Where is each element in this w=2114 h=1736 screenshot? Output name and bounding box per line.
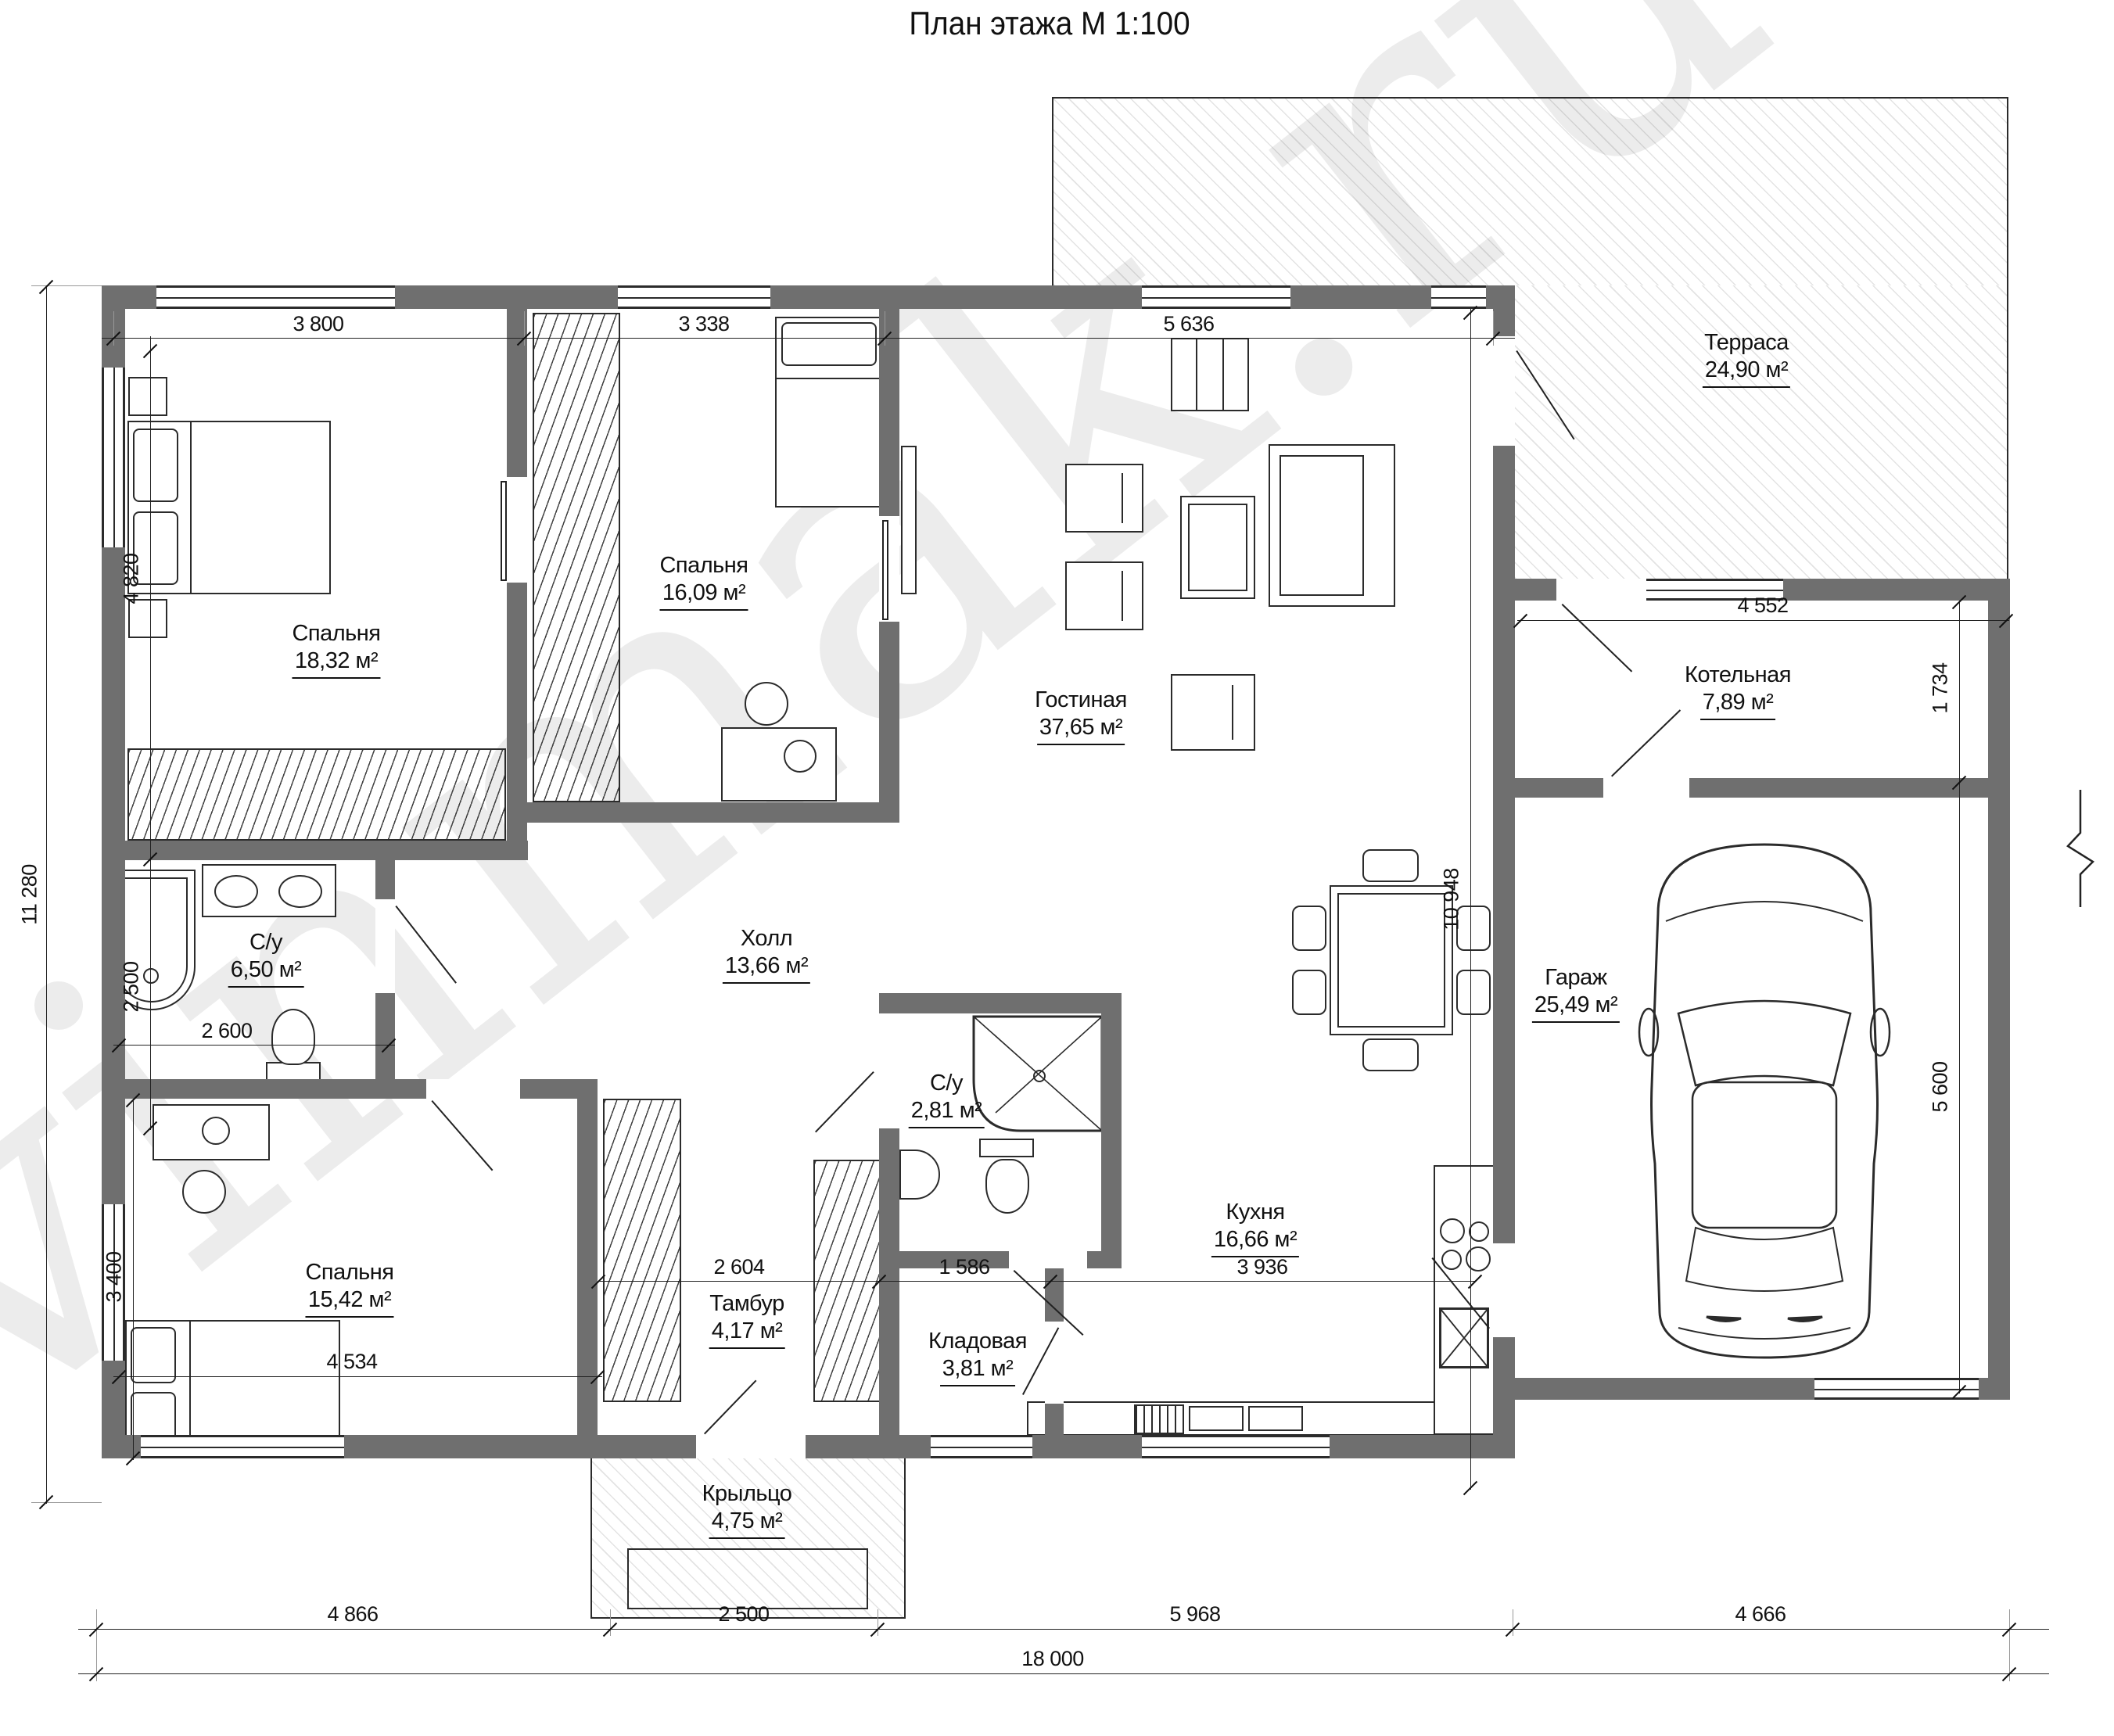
tv-stand [901, 446, 917, 594]
dim-value: 2 500 [718, 1602, 769, 1627]
cooktop-burner [1441, 1250, 1462, 1270]
room-label-bedroom3: Спальня 15,42 м² [305, 1259, 393, 1318]
dim-value: 5 636 [1163, 312, 1214, 336]
room-area: 7,89 м² [1700, 689, 1776, 719]
nightstand [128, 377, 167, 416]
window [156, 285, 395, 309]
cooktop-burner [1440, 1218, 1465, 1243]
room-label-wc: С/у 2,81 м² [909, 1070, 985, 1128]
door-swing [704, 1380, 756, 1435]
dim-extension [113, 311, 114, 346]
room-name: Гостиная [1035, 687, 1127, 714]
dim-value: 4 866 [327, 1602, 378, 1627]
dim-value: 5 600 [1929, 1061, 1953, 1112]
dim-line [113, 1045, 395, 1046]
dining-table [1330, 885, 1453, 1035]
room-area: 24,90 м² [1703, 357, 1790, 387]
room-label-terrace: Терраса 24,90 м² [1703, 329, 1790, 388]
door-opening [1556, 579, 1646, 601]
nightstand [128, 599, 167, 638]
wall-bedroom2-bottom [507, 802, 899, 823]
kitchen-sink [1189, 1406, 1244, 1431]
door-swing [1562, 604, 1633, 673]
terrace-boundary [2007, 97, 2008, 580]
dim-extension [2009, 1609, 2010, 1681]
room-label-bedroom1: Спальня 18,32 м² [292, 620, 380, 679]
dim-line [78, 1673, 2049, 1674]
room-area: 6,50 м² [228, 956, 304, 987]
room-name: Холл [723, 925, 810, 952]
pillow [133, 429, 178, 502]
sofa-seat [1280, 455, 1364, 596]
room-area: 2,81 м² [909, 1097, 985, 1128]
cooktop-burner [1466, 1246, 1491, 1272]
coffee-table [1180, 496, 1255, 599]
dim-line [102, 338, 1515, 339]
room-label-porch: Крыльцо 4,75 м² [702, 1480, 792, 1539]
wc-sink [899, 1150, 940, 1200]
dim-extension [1513, 1609, 1513, 1636]
desk [721, 727, 837, 802]
dim-extension [1493, 311, 1494, 346]
drawing-title: План этажа М 1:100 [909, 5, 1190, 42]
dim-value: 1 586 [939, 1255, 989, 1279]
toilet-bowl [271, 1009, 315, 1065]
window [1431, 285, 1486, 309]
room-label-bathroom: С/у 6,50 м² [228, 929, 304, 988]
sink-basin [214, 875, 258, 908]
dim-line [46, 285, 47, 1504]
dim-extension [610, 1609, 611, 1636]
dim-line [78, 1629, 2049, 1630]
dim-value: 3 936 [1236, 1255, 1287, 1279]
porch-edge [904, 1458, 906, 1619]
cabinet [1171, 338, 1249, 411]
door-opening [1603, 778, 1689, 798]
room-label-bedroom2: Спальня 16,09 м² [659, 552, 748, 611]
room-area: 13,66 м² [723, 952, 810, 983]
dim-value: 10 948 [1440, 868, 1464, 931]
dim-value: 2 500 [120, 961, 144, 1012]
wall-right [1988, 579, 2010, 1400]
armchair [1065, 464, 1143, 533]
room-name: Спальня [659, 552, 748, 579]
room-label-kitchen: Кухня 16,66 м² [1211, 1199, 1299, 1257]
window [1142, 1435, 1330, 1458]
window [618, 285, 770, 309]
dim-line [598, 1281, 1475, 1282]
terrace-boundary [1052, 97, 1053, 287]
dim-value: 3 338 [678, 312, 729, 336]
chair [1292, 906, 1326, 951]
window [931, 1435, 1032, 1458]
dim-value: 3 800 [293, 312, 343, 336]
door-opening [426, 1079, 520, 1099]
chair [1292, 970, 1326, 1015]
vanity [202, 864, 336, 917]
porch-step [627, 1548, 868, 1609]
room-name: Спальня [292, 620, 380, 647]
dim-value: 18 000 [1021, 1647, 1084, 1671]
wall-tambour-right [879, 1128, 899, 1458]
pillow [781, 322, 877, 366]
room-area: 4,75 м² [709, 1508, 785, 1538]
room-name: С/у [909, 1070, 985, 1097]
room-label-garage: Гараж 25,49 м² [1532, 964, 1620, 1023]
room-area: 16,66 м² [1211, 1226, 1299, 1257]
room-name: Крыльцо [702, 1480, 792, 1508]
dim-value: 1 734 [1929, 662, 1953, 713]
dim-value: 4 666 [1735, 1602, 1786, 1627]
wall-bedroom1-right [507, 309, 527, 860]
break-symbol [2057, 790, 2104, 907]
room-name: Гараж [1532, 964, 1620, 992]
sink-basin [278, 875, 322, 908]
room-label-tambour: Тамбур 4,17 м² [709, 1290, 785, 1349]
dim-value: 4 552 [1737, 594, 1788, 618]
oven-unit [1439, 1307, 1489, 1368]
window [1142, 285, 1290, 309]
door-leaf [501, 481, 507, 581]
dim-tick [1513, 614, 1527, 628]
dim-value: 2 600 [201, 1019, 252, 1043]
room-area: 15,42 м² [306, 1286, 393, 1317]
dim-value: 5 968 [1169, 1602, 1220, 1627]
door-leaf [882, 520, 888, 620]
room-label-living: Гостиная 37,65 м² [1035, 687, 1127, 745]
kitchen-unit [1434, 1165, 1495, 1435]
dim-extension [31, 1502, 102, 1503]
room-area: 3,81 м² [940, 1355, 1016, 1386]
blanket-line [190, 421, 192, 594]
wall-wc-right [1101, 1013, 1122, 1268]
desk-chair [745, 682, 788, 726]
door-opening [1493, 336, 1515, 446]
dim-extension [96, 1609, 97, 1681]
dim-extension [885, 311, 885, 346]
dim-value: 2 604 [713, 1255, 764, 1279]
armchair-seat [1075, 473, 1123, 523]
armchair-seat [1182, 685, 1233, 740]
armchair [1065, 561, 1143, 630]
dim-value: 11 280 [18, 864, 42, 925]
dim-extension [878, 1609, 878, 1636]
door-opening [507, 477, 527, 583]
room-name: Тамбур [709, 1290, 785, 1318]
armchair-seat [1075, 571, 1123, 621]
room-area: 18,32 м² [293, 647, 380, 678]
dish-rack [1134, 1404, 1184, 1434]
sofa [1269, 444, 1395, 607]
wall-bedroom3-top [102, 1079, 598, 1099]
chair [1362, 849, 1419, 882]
door-swing [1611, 709, 1681, 777]
room-name: С/у [228, 929, 304, 956]
shower-cabin [972, 1015, 1104, 1132]
dim-line [1517, 620, 2009, 621]
wardrobe [533, 313, 620, 802]
wall-tambour-left [577, 1079, 598, 1458]
door-opening [375, 899, 395, 993]
dim-line [150, 336, 151, 1130]
kitchen-sink [1248, 1406, 1303, 1431]
dim-line [1470, 309, 1471, 1490]
toilet-tank [979, 1139, 1034, 1157]
wall-bath-top [102, 841, 528, 860]
room-label-hall: Холл 13,66 м² [723, 925, 810, 984]
wardrobe [603, 1099, 681, 1402]
bed [775, 317, 883, 508]
window [102, 368, 125, 547]
window [141, 1435, 344, 1458]
room-name: Кладовая [928, 1328, 1027, 1355]
dim-line [113, 1376, 602, 1377]
bathtub-drain [143, 968, 159, 984]
door-opening [1009, 1251, 1087, 1268]
terrace-hatch [1053, 99, 2007, 285]
desk-chair [182, 1170, 226, 1214]
dim-line [133, 1099, 134, 1460]
room-name: Котельная [1685, 662, 1791, 689]
chair [1362, 1038, 1419, 1071]
wardrobe [127, 748, 506, 841]
table-inner [1337, 893, 1445, 1028]
terrace-boundary [1052, 97, 2008, 99]
wall-boiler-garage [1515, 778, 1988, 798]
floor-plan: vinmak.ru План этажа М 1:100 [0, 0, 2114, 1736]
car [1631, 827, 1897, 1375]
cooktop-burner [1469, 1221, 1489, 1242]
room-area: 16,09 м² [660, 579, 748, 610]
dim-line [1959, 601, 1960, 1393]
door-opening [1493, 1243, 1515, 1337]
desk-item [784, 740, 817, 773]
dim-value: 3 400 [102, 1251, 127, 1302]
room-label-boiler: Котельная 7,89 м² [1685, 662, 1791, 720]
room-area: 25,49 м² [1532, 992, 1620, 1022]
dim-value: 4 534 [326, 1350, 377, 1374]
blanket-line [775, 378, 883, 379]
room-area: 37,65 м² [1037, 714, 1125, 744]
cabinet-divider [1196, 338, 1224, 411]
entrance-door-opening [696, 1435, 806, 1458]
armchair [1171, 674, 1255, 751]
desk-item [202, 1117, 230, 1145]
room-name: Терраса [1703, 329, 1790, 357]
pillow [131, 1327, 176, 1383]
porch-edge [590, 1458, 592, 1619]
table-inner [1188, 504, 1247, 591]
chair [1456, 970, 1491, 1015]
toilet-bowl [985, 1159, 1029, 1214]
room-area: 4,17 м² [709, 1318, 785, 1348]
bed [127, 421, 331, 594]
wall-wc-top [879, 993, 1122, 1013]
room-name: Спальня [305, 1259, 393, 1286]
dim-extension [524, 311, 525, 346]
room-name: Кухня [1211, 1199, 1299, 1226]
door-swing [815, 1071, 874, 1132]
room-label-storage: Кладовая 3,81 м² [928, 1328, 1027, 1386]
dim-value: 4 820 [120, 553, 144, 604]
dim-extension [31, 285, 102, 286]
